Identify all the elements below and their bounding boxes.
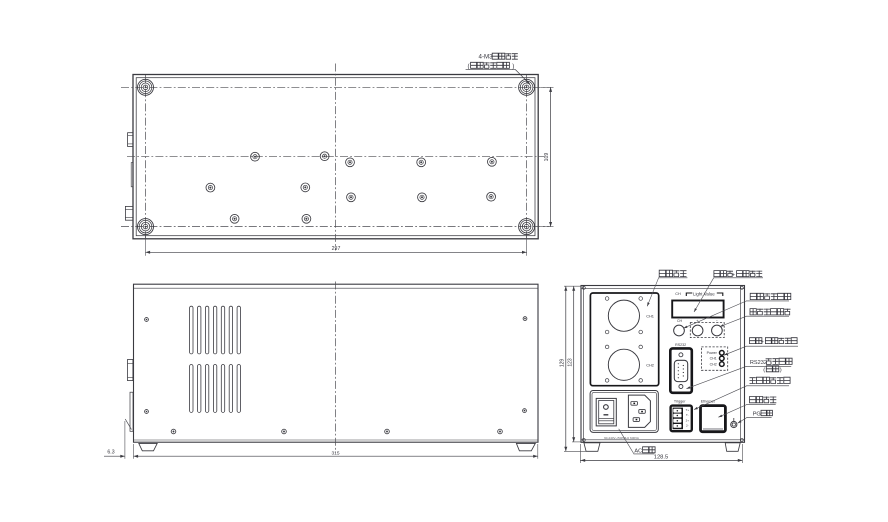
svg-text:T+: T+	[686, 408, 690, 412]
svg-text:T-: T-	[686, 413, 689, 417]
svg-text:+: +	[761, 339, 764, 345]
svg-text:129: 129	[560, 359, 566, 368]
svg-text:6.3: 6.3	[107, 450, 114, 456]
svg-text:RS232: RS232	[675, 343, 686, 347]
svg-text:2+: 2+	[686, 418, 690, 422]
svg-text:): )	[780, 368, 782, 374]
svg-text:4-M3: 4-M3	[479, 54, 494, 61]
svg-text:CH1: CH1	[710, 357, 717, 361]
svg-text:109: 109	[544, 153, 550, 162]
svg-text:-: -	[716, 318, 718, 323]
svg-text:CH2: CH2	[710, 362, 717, 366]
svg-text:123: 123	[568, 358, 574, 367]
svg-text:128.5: 128.5	[654, 454, 669, 460]
svg-text:Power: Power	[707, 351, 718, 355]
svg-text:(: (	[763, 368, 765, 374]
svg-text:CH2: CH2	[646, 362, 654, 367]
svg-text:PG: PG	[753, 412, 761, 418]
svg-text:Trigger: Trigger	[674, 399, 686, 403]
svg-text:90-240V~/50/60Hz 600VA: 90-240V~/50/60Hz 600VA	[604, 436, 639, 440]
svg-text:CH: CH	[677, 319, 683, 323]
svg-text:297: 297	[332, 246, 341, 252]
svg-text:2-: 2-	[686, 424, 689, 428]
svg-text:(: (	[468, 63, 471, 70]
svg-text:): )	[512, 63, 514, 70]
svg-text:RS232: RS232	[750, 360, 767, 366]
svg-text:315: 315	[331, 450, 339, 456]
svg-text:CH: CH	[675, 292, 681, 296]
svg-text:CH1: CH1	[646, 313, 654, 318]
